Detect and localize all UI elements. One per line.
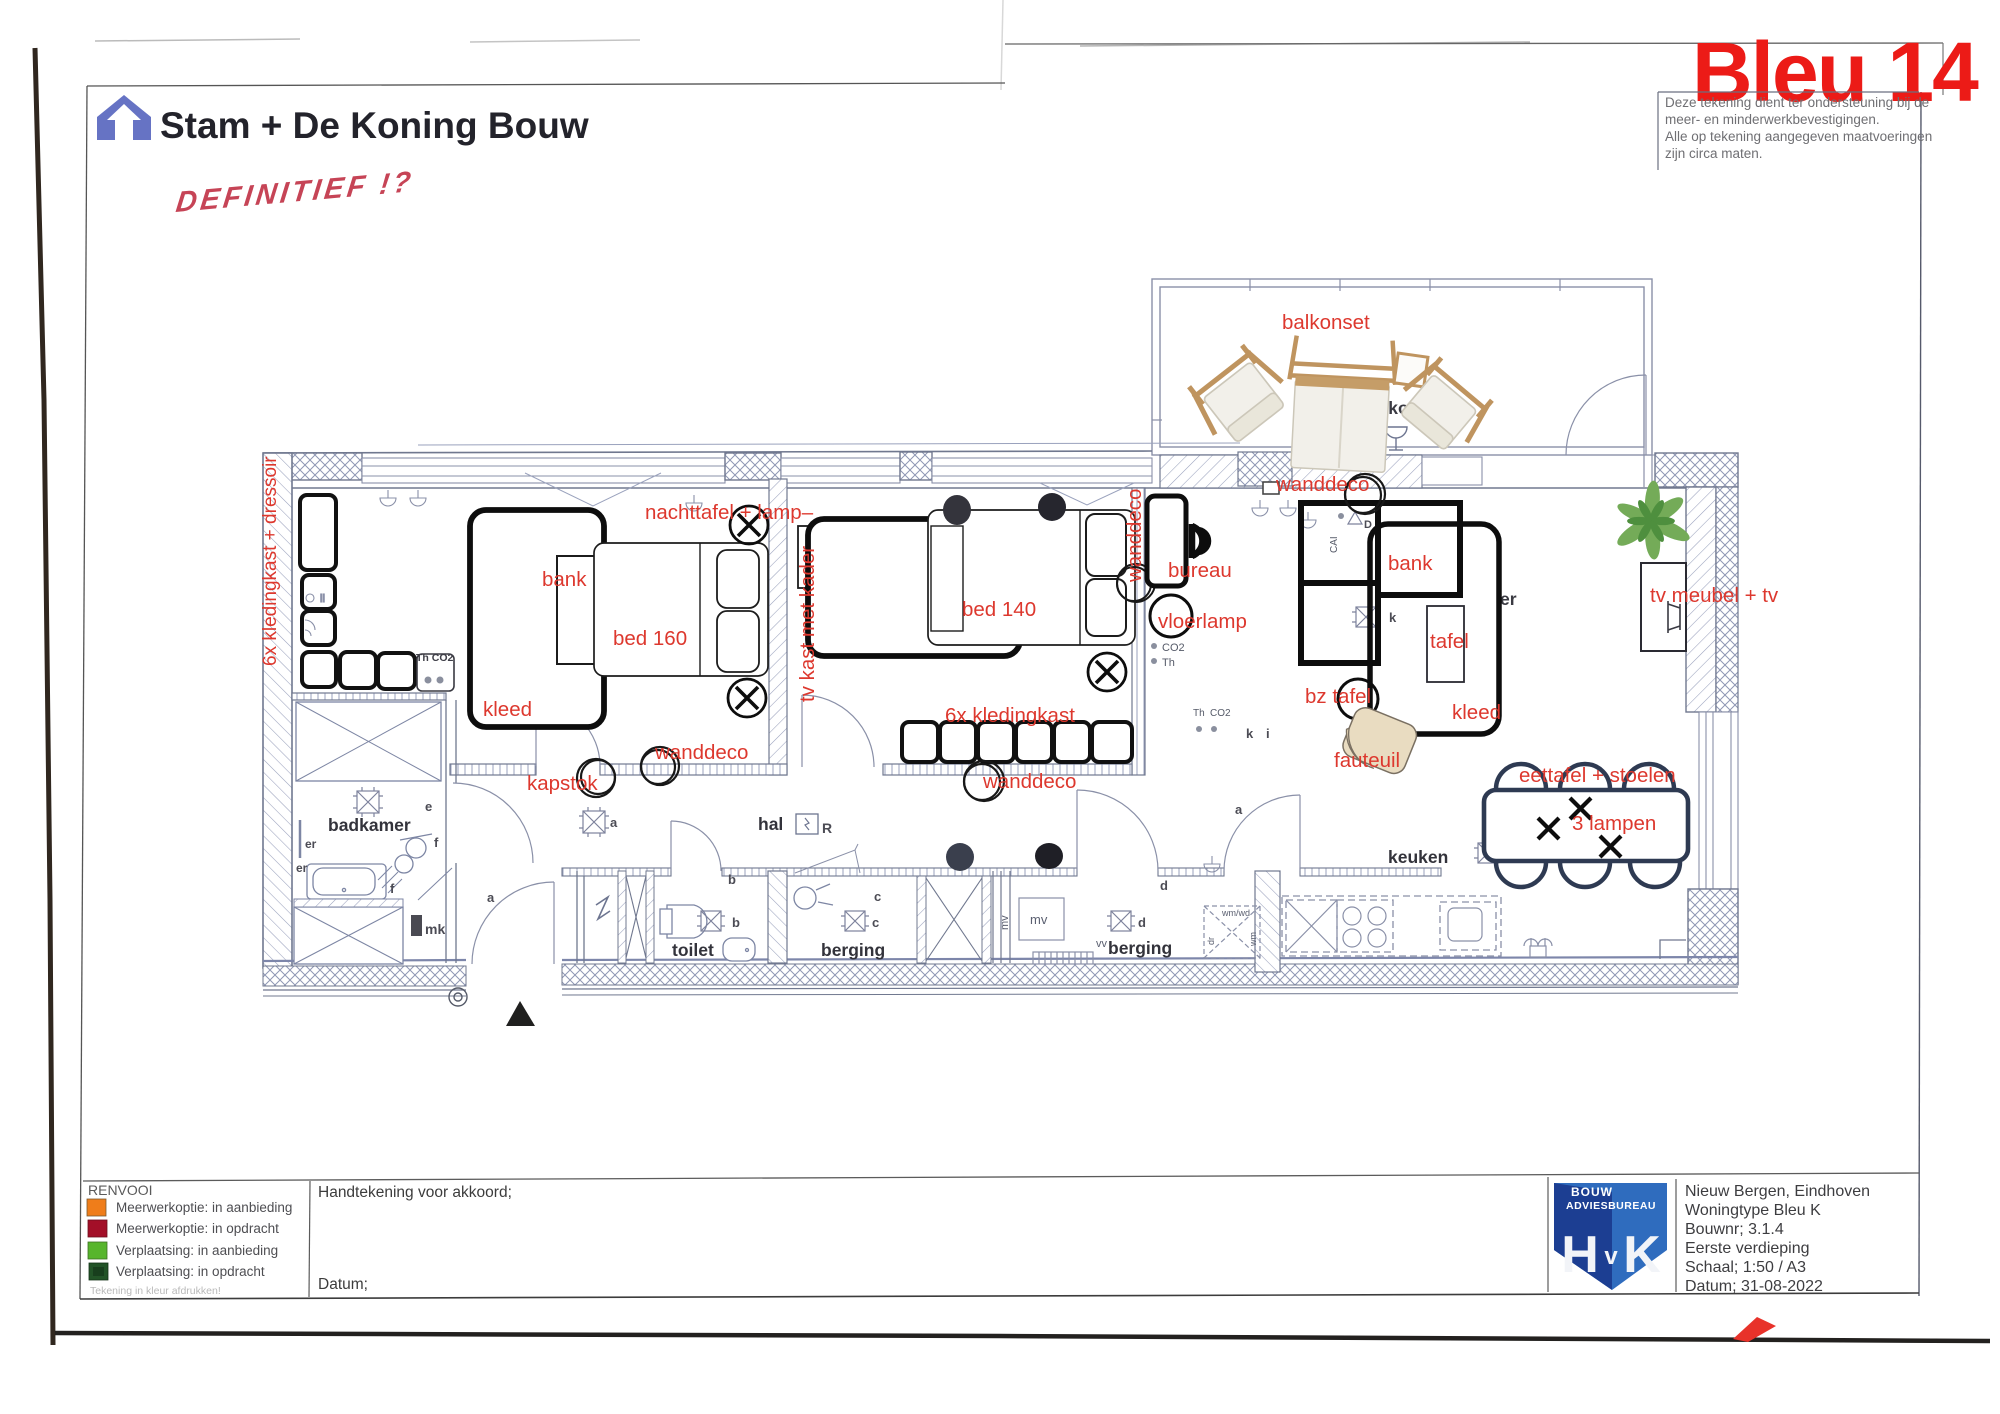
svg-text:d: d	[1160, 878, 1168, 893]
svg-text:k: k	[1246, 726, 1254, 741]
svg-text:e: e	[425, 799, 432, 814]
svg-text:Schaal; 1:50 / A3: Schaal; 1:50 / A3	[1685, 1259, 1806, 1276]
svg-text:Meerwerkoptie: in opdracht: Meerwerkoptie: in opdracht	[116, 1221, 279, 1236]
svg-text:c: c	[874, 889, 881, 904]
svg-text:kleed: kleed	[483, 698, 532, 721]
svg-text:Woningtype Bleu K: Woningtype Bleu K	[1685, 1202, 1821, 1219]
svg-text:mv: mv	[999, 915, 1011, 930]
svg-text:R: R	[822, 820, 832, 836]
svg-text:b: b	[728, 872, 736, 887]
svg-text:wanddeco: wanddeco	[1275, 473, 1369, 496]
svg-text:eettafel + stoelen: eettafel + stoelen	[1519, 764, 1676, 787]
svg-text:bz tafel: bz tafel	[1305, 685, 1371, 708]
svg-text:mv: mv	[1030, 912, 1048, 927]
svg-text:d: d	[1138, 915, 1146, 930]
svg-text:ll: ll	[320, 593, 325, 605]
svg-text:Tekening in kleur afdrukken!: Tekening in kleur afdrukken!	[90, 1285, 221, 1297]
svg-text:K: K	[1623, 1226, 1661, 1284]
svg-text:meer- en minderwerkbevestiging: meer- en minderwerkbevestigingen.	[1665, 112, 1880, 127]
svg-text:CO2: CO2	[1162, 642, 1185, 654]
svg-text:wanddeco: wanddeco	[1123, 489, 1146, 583]
svg-text:a: a	[610, 815, 618, 830]
svg-text:bureau: bureau	[1168, 559, 1232, 582]
svg-text:kapstok: kapstok	[527, 772, 598, 795]
svg-text:wanddeco: wanddeco	[654, 741, 748, 764]
svg-text:bank: bank	[1388, 552, 1433, 575]
svg-text:mk: mk	[425, 921, 445, 937]
svg-text:ADVIESBUREAU: ADVIESBUREAU	[1566, 1200, 1656, 1212]
svg-text:er: er	[1500, 589, 1517, 609]
svg-text:D: D	[1364, 519, 1372, 531]
svg-text:dr: dr	[1206, 937, 1216, 945]
svg-text:er: er	[305, 837, 317, 851]
svg-text:H: H	[1561, 1226, 1599, 1284]
svg-text:fauteuil: fauteuil	[1334, 749, 1400, 772]
svg-text:toilet: toilet	[672, 940, 714, 960]
svg-text:Meerwerkoptie: in aanbieding: Meerwerkoptie: in aanbieding	[116, 1200, 292, 1215]
svg-text:nachttafel + lamp–: nachttafel + lamp–	[645, 501, 814, 524]
svg-text:k: k	[1389, 610, 1397, 625]
svg-text:Deze tekening dient ter onders: Deze tekening dient ter ondersteuning bi…	[1665, 95, 1929, 110]
svg-text:CAI: CAI	[1329, 536, 1340, 553]
svg-text:bed 140: bed 140	[962, 598, 1036, 621]
svg-text:6x kledingkast + dressoir: 6x kledingkast + dressoir	[260, 456, 281, 666]
svg-text:berging: berging	[821, 940, 885, 960]
svg-text:a: a	[1235, 802, 1243, 817]
svg-text:CO2: CO2	[1210, 708, 1231, 719]
svg-text:vv: vv	[1096, 938, 1108, 950]
svg-text:wanddeco: wanddeco	[982, 770, 1076, 793]
svg-text:Handtekening voor akkoord;: Handtekening voor akkoord;	[318, 1184, 512, 1201]
svg-text:6x kledingkast: 6x kledingkast	[945, 704, 1075, 727]
svg-text:a: a	[487, 890, 495, 905]
svg-text:tv kast met kader: tv kast met kader	[796, 546, 819, 702]
svg-text:i: i	[1266, 726, 1270, 741]
svg-text:bank: bank	[542, 568, 587, 591]
svg-text:vloerlamp: vloerlamp	[1158, 610, 1247, 633]
svg-text:berging: berging	[1108, 938, 1172, 958]
svg-text:3 lampen: 3 lampen	[1572, 812, 1656, 835]
svg-text:b: b	[732, 915, 740, 930]
svg-text:Nieuw Bergen, Eindhoven: Nieuw Bergen, Eindhoven	[1685, 1183, 1870, 1200]
svg-text:Th: Th	[1193, 708, 1205, 719]
svg-text:Datum;: Datum;	[318, 1276, 368, 1293]
svg-text:Eerste verdieping: Eerste verdieping	[1685, 1240, 1810, 1257]
svg-text:Bouwnr; 3.1.4: Bouwnr; 3.1.4	[1685, 1221, 1784, 1238]
svg-text:Th: Th	[1162, 657, 1175, 669]
svg-text:v: v	[1604, 1243, 1618, 1270]
svg-text:f: f	[390, 881, 395, 896]
svg-text:wm: wm	[1248, 932, 1258, 947]
svg-text:BOUW: BOUW	[1571, 1185, 1613, 1199]
svg-text:Verplaatsing: in opdracht: Verplaatsing: in opdracht	[116, 1264, 265, 1279]
svg-text:c: c	[872, 915, 879, 930]
svg-text:Stam + De Koning Bouw: Stam + De Koning Bouw	[160, 105, 589, 146]
svg-text:bed 160: bed 160	[613, 627, 687, 650]
svg-text:Th CO2: Th CO2	[416, 652, 453, 664]
svg-text:hal: hal	[758, 814, 783, 834]
svg-text:balkonset: balkonset	[1282, 311, 1370, 334]
svg-text:kleed: kleed	[1452, 701, 1501, 724]
svg-text:Alle op tekening aangegeven ma: Alle op tekening aangegeven maatvoeringe…	[1665, 129, 1932, 144]
svg-text:er: er	[296, 861, 308, 875]
svg-text:tv meubel + tv: tv meubel + tv	[1650, 584, 1779, 607]
svg-text:wm/wd: wm/wd	[1221, 908, 1250, 918]
svg-text:f: f	[434, 835, 439, 850]
svg-text:RENVOOI: RENVOOI	[88, 1182, 153, 1198]
svg-text:tafel: tafel	[1430, 630, 1469, 653]
svg-text:zijn circa maten.: zijn circa maten.	[1665, 146, 1763, 161]
svg-text:Datum; 31-08-2022: Datum; 31-08-2022	[1685, 1278, 1823, 1295]
svg-text:badkamer: badkamer	[328, 815, 411, 835]
svg-text:Verplaatsing: in aanbieding: Verplaatsing: in aanbieding	[116, 1243, 278, 1258]
svg-text:keuken: keuken	[1388, 847, 1448, 867]
